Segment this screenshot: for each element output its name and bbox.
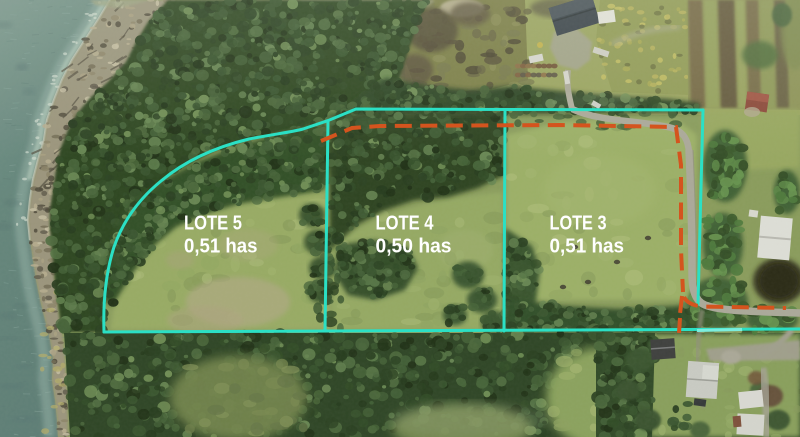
svg-text:0,51 has: 0,51 has — [184, 236, 258, 258]
svg-text:LOTE 5: LOTE 5 — [184, 213, 242, 235]
svg-text:0,50 has: 0,50 has — [376, 236, 452, 258]
svg-text:LOTE 3: LOTE 3 — [550, 213, 607, 235]
svg-text:LOTE 4: LOTE 4 — [376, 213, 435, 235]
svg-text:0,51 has: 0,51 has — [550, 236, 625, 258]
